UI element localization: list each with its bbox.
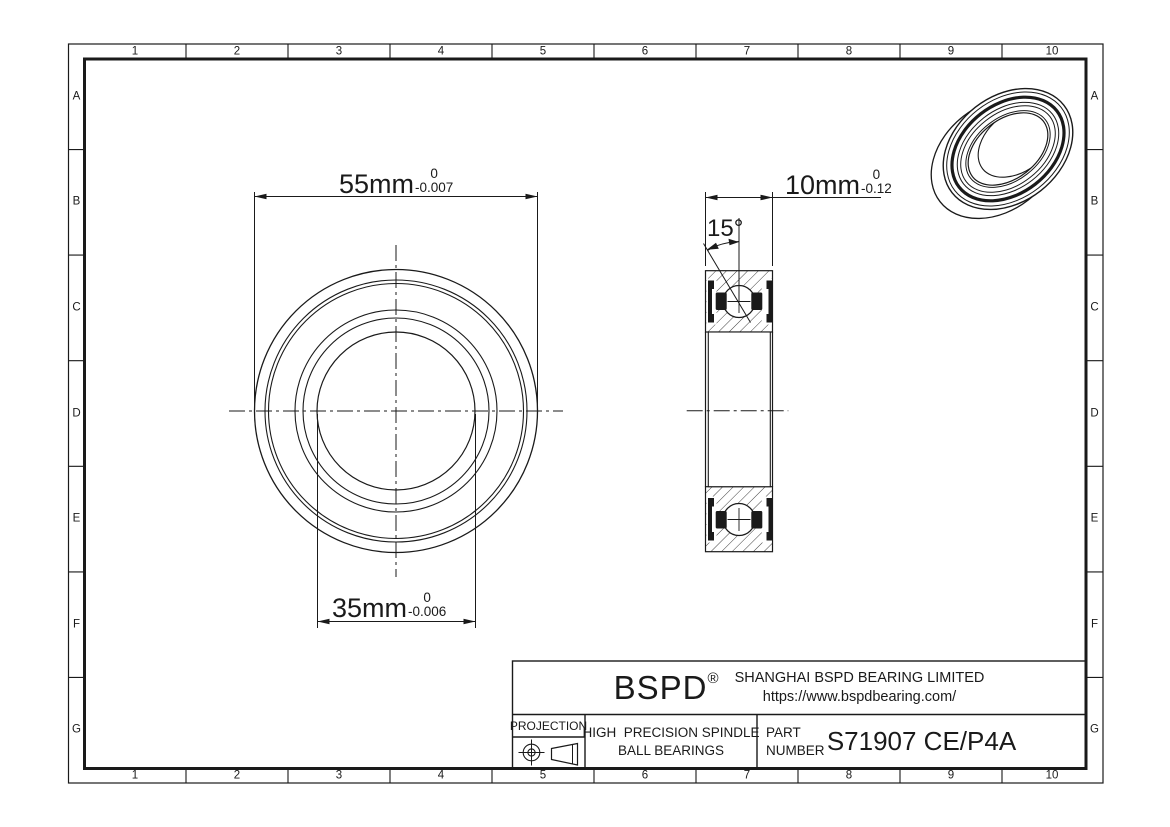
grid-col-label: 3 — [336, 770, 342, 782]
company-website: https://www.bspdbearing.com/ — [763, 689, 956, 706]
dimension-value: 55mm — [339, 174, 414, 195]
grid-row-label: G — [1090, 724, 1099, 736]
outer-diameter-dimension: 55mm 0 -0.007 — [339, 167, 453, 195]
grid-col-label: 1 — [132, 46, 138, 58]
section-view — [687, 192, 881, 552]
contact-angle-label: 15° — [707, 219, 743, 238]
brand-logo-text: BSPD® — [614, 671, 719, 704]
dimension-value: 35mm — [332, 598, 407, 619]
grid-row-label: C — [72, 302, 80, 314]
grid-col-label: 9 — [948, 46, 954, 58]
engineering-drawing-sheet: { "canvas": { "background": "#ffffff", "… — [0, 0, 1170, 827]
grid-row-label: B — [73, 197, 81, 209]
grid-col-label: 2 — [234, 770, 240, 782]
grid-col-label: 7 — [744, 46, 750, 58]
grid-col-label: 10 — [1046, 770, 1059, 782]
front-view — [229, 192, 563, 628]
grid-col-label: 5 — [540, 770, 546, 782]
grid-col-label: 6 — [642, 46, 648, 58]
projection-label: PROJECTION — [512, 714, 585, 737]
grid-row-label: B — [1091, 197, 1099, 209]
tolerance-lower: -0.12 — [861, 182, 892, 196]
part-number-cell: PART NUMBER S71907 CE/P4A — [757, 714, 1086, 769]
grid-col-label: 8 — [846, 770, 852, 782]
grid-col-label: 4 — [438, 46, 444, 58]
grid-row-label: E — [1091, 513, 1099, 525]
grid-col-label: 3 — [336, 46, 342, 58]
grid-row-label: G — [72, 724, 81, 736]
tolerance-upper: 0 — [430, 167, 438, 181]
grid-row-label: F — [1091, 619, 1098, 631]
grid-row-label: F — [73, 619, 80, 631]
title-block-brand-row: BSPD® SHANGHAI BSPD BEARING LIMITED http… — [512, 661, 1086, 714]
product-description: HIGH PRECISION SPINDLE BALL BEARINGS — [585, 714, 757, 769]
projection-symbol — [519, 740, 578, 766]
grid-row-label: D — [72, 408, 80, 420]
bore-diameter-dimension: 35mm 0 -0.006 — [332, 591, 446, 619]
grid-row-label: A — [73, 91, 81, 103]
registered-mark: ® — [708, 670, 719, 687]
width-dimension: 10mm 0 -0.12 — [785, 168, 892, 196]
product-line-1: HIGH PRECISION SPINDLE — [582, 724, 759, 742]
grid-col-label: 10 — [1046, 46, 1059, 58]
grid-col-label: 5 — [540, 46, 546, 58]
dimension-value: 10mm — [785, 175, 860, 196]
tolerance-upper: 0 — [873, 168, 881, 182]
grid-row-label: C — [1090, 302, 1098, 314]
grid-col-label: 6 — [642, 770, 648, 782]
product-line-2: BALL BEARINGS — [618, 742, 724, 760]
grid-col-label: 9 — [948, 770, 954, 782]
grid-col-label: 2 — [234, 46, 240, 58]
grid-row-label: A — [1091, 91, 1099, 103]
tolerance-lower: -0.006 — [408, 605, 446, 619]
grid-col-label: 1 — [132, 770, 138, 782]
grid-row-label: D — [1090, 408, 1098, 420]
grid-col-label: 8 — [846, 46, 852, 58]
iso-view — [907, 64, 1096, 244]
grid-row-label: E — [73, 513, 81, 525]
grid-col-label: 7 — [744, 770, 750, 782]
part-number-value: S71907 CE/P4A — [757, 714, 1086, 769]
company-name: SHANGHAI BSPD BEARING LIMITED — [735, 670, 985, 687]
tolerance-upper: 0 — [423, 591, 431, 605]
grid-col-label: 4 — [438, 770, 444, 782]
tolerance-lower: -0.007 — [415, 181, 453, 195]
